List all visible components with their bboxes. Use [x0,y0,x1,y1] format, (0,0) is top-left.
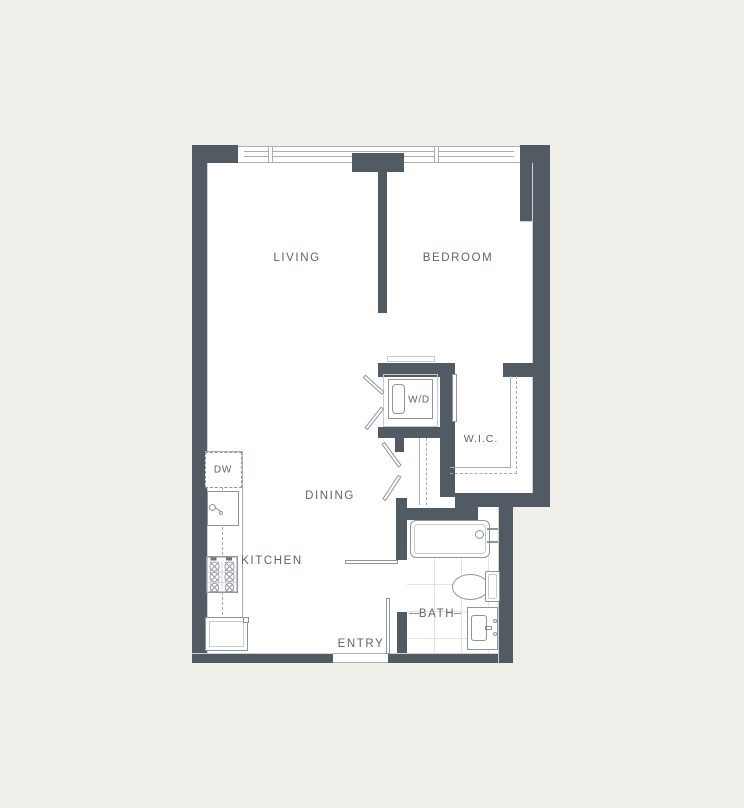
room-label-dining: DINING [305,490,355,502]
wd-shelf [387,356,435,362]
counter-edge-line [242,452,243,618]
tub-faucet-icon [475,530,484,539]
kitchen-faucet-knob [219,511,223,515]
coat-closet-shelf-line [419,438,420,505]
window-mullion [268,147,273,162]
refrigerator-inner [209,621,244,647]
entry-door-leaf [386,598,390,654]
wall-bath-right [498,505,513,663]
wall-bath-top [403,508,478,520]
wall-top-left-corner [192,145,238,163]
room-label-living: LIVING [273,252,320,264]
wic-shelf-line-h [450,467,511,468]
wic-door-leaf [452,374,457,422]
room-label-entry: ENTRY [338,638,385,650]
toilet-bowl [452,574,489,600]
bathtub-inner [414,524,486,554]
bath-label-dash [454,613,461,614]
room-label-bedroom: BEDROOM [423,252,494,264]
room-label-wd: W/D [408,395,430,406]
wic-rod-line-v [516,376,517,474]
bath-door-leaf [345,560,398,564]
tub-supply-line [487,541,498,543]
vanity-faucet-icon [485,626,492,630]
wall-bath-west-upper [396,498,407,560]
vanity-knob-icon [493,619,497,623]
tub-supply-line [487,528,498,530]
coat-closet-rod-line [426,438,427,505]
room-label-bath: BATH [419,608,455,620]
room-label-kitchen: KITCHEN [241,555,303,567]
washer-dryer-door [392,384,405,414]
room-label-wic: W.I.C. [464,433,499,445]
entry-threshold [333,653,388,663]
wic-rod-line-h [450,473,517,474]
wall-right [532,163,550,505]
wall-coat-closet-stub [395,437,404,452]
stove [206,556,238,593]
wall-living-bedroom-divider [378,163,387,313]
floor-plan: DW [0,0,744,808]
vanity-knob-icon [493,632,497,636]
window-mullion [434,147,439,162]
wic-shelf-line-v [510,376,511,468]
refrigerator-hinge [243,617,249,623]
wall-bottom-left [192,653,333,663]
wall-wd-closet-bottom [378,427,442,438]
toilet-tank-inner [488,574,497,599]
wall-bath-west-lower [397,612,407,653]
dishwasher-label: DW [214,465,232,476]
wall-bedroom-bottom [503,363,540,377]
bath-label-dash [409,613,420,614]
wall-bottom-right [388,653,513,663]
